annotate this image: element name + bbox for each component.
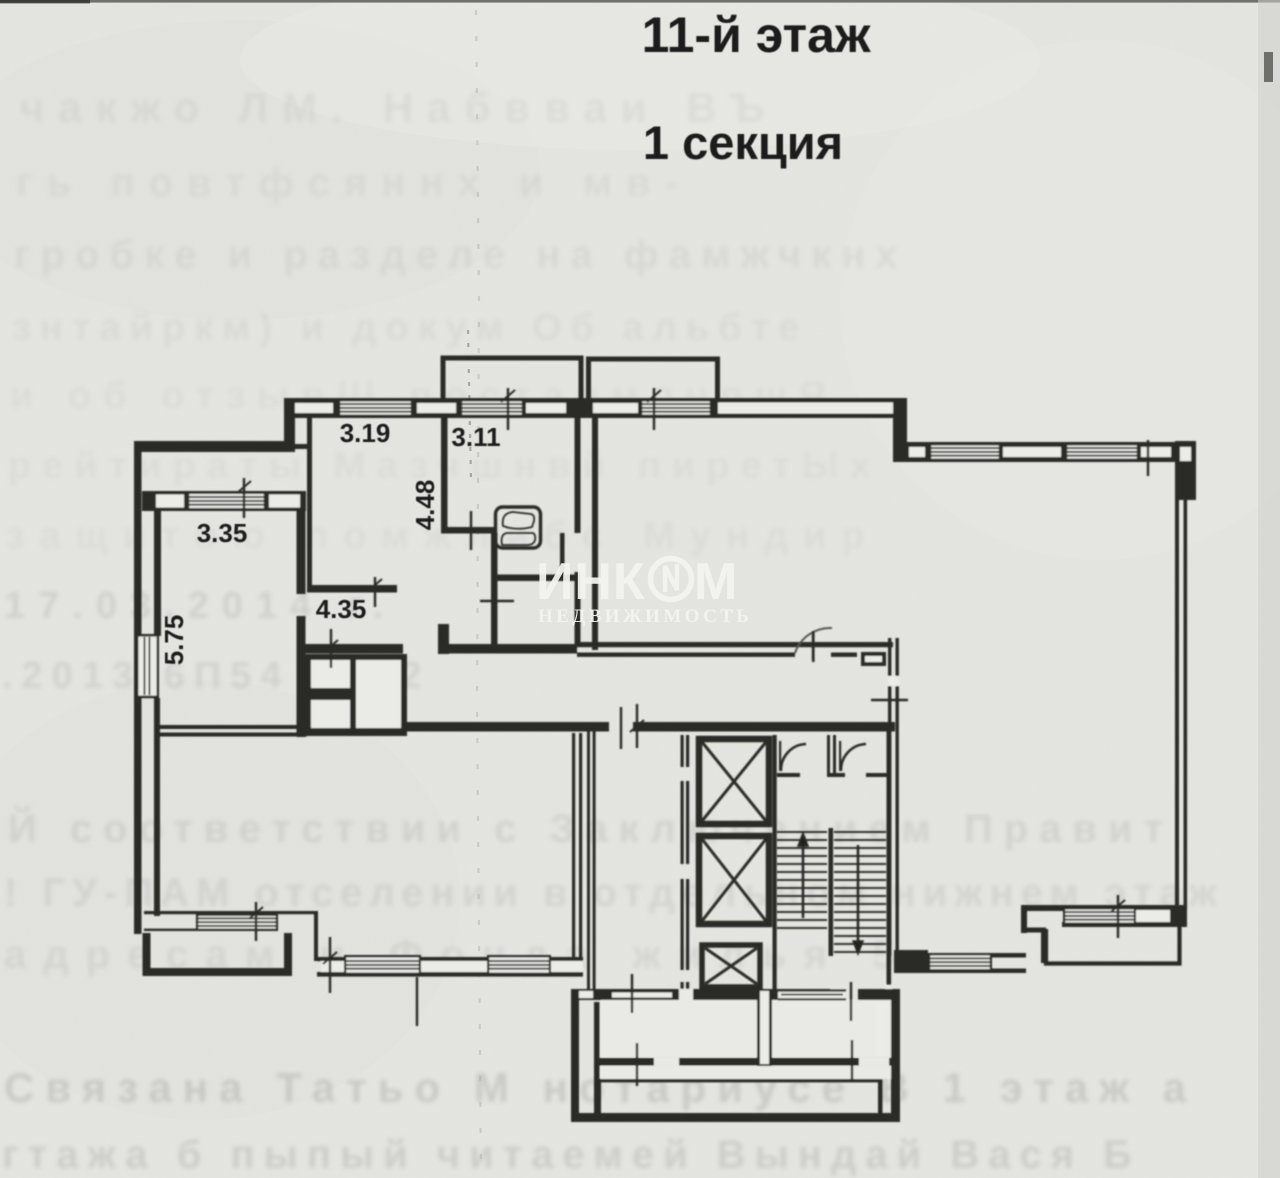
- svg-text:М: М: [694, 553, 737, 611]
- svg-text:гь повтфсяннх и мв-: гь повтфсяннх и мв-: [16, 161, 692, 205]
- svg-text:гробке и разделе на фамжчкнх: гробке и разделе на фамжчкнх: [14, 233, 908, 277]
- svg-text:3.19: 3.19: [340, 418, 391, 448]
- svg-text:4.48: 4.48: [410, 480, 440, 531]
- svg-text:знтайркм) и докум Об альбт: знтайркм) и докум Об альбте: [12, 307, 809, 349]
- svg-text:3.11: 3.11: [451, 422, 500, 452]
- svg-text:Й соответствии с Заключение: Й соответствии с Заключением Правит: [8, 805, 1174, 851]
- svg-text:4.35: 4.35: [316, 594, 367, 624]
- svg-text:НЕДВИЖИМОСТЬ: НЕДВИЖИМОСТЬ: [538, 606, 752, 627]
- svg-text:11-й этаж: 11-й этаж: [642, 7, 871, 63]
- svg-text:5.75: 5.75: [159, 615, 189, 666]
- svg-text:1 секция: 1 секция: [643, 116, 843, 169]
- svg-text:ИНК: ИНК: [536, 553, 646, 611]
- svg-text:3.35: 3.35: [197, 518, 248, 548]
- svg-text:гтажа б пыпый читаемей Вын: гтажа б пыпый читаемей Вындай Вася Б: [2, 1133, 1141, 1177]
